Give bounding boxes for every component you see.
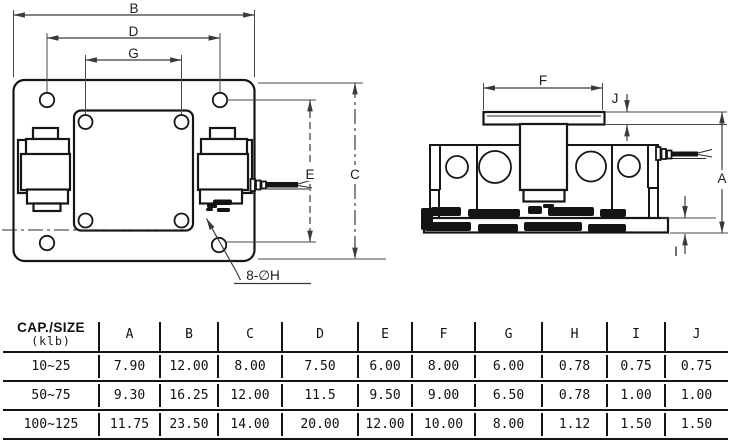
table-row: 10~25 7.90 12.00 8.00 7.50 6.00 8.00 6.0… xyxy=(3,352,728,381)
cell: 1.00 xyxy=(665,381,728,410)
cell: 7.50 xyxy=(282,352,358,381)
cell: 7.90 xyxy=(99,352,160,381)
cell: 8.00 xyxy=(475,410,542,439)
cell: 12.00 xyxy=(218,381,282,410)
dimension-b: B xyxy=(14,1,255,77)
cell: 8.00 xyxy=(412,352,475,381)
cell: 10.00 xyxy=(412,410,475,439)
cell: 6.00 xyxy=(358,352,412,381)
table-row: 50~75 9.30 16.25 12.00 11.5 9.50 9.00 6.… xyxy=(3,381,728,410)
cell: 9.50 xyxy=(358,381,412,410)
table-header-row: CAP./SIZE (klb) A B C D E F G H I J xyxy=(3,317,728,352)
load-cell-drawing-sheet: B D G xyxy=(0,0,730,442)
col-header-c: C xyxy=(218,317,282,352)
col-header-j: J xyxy=(665,317,728,352)
dim-label-e: E xyxy=(305,167,314,182)
dim-label-i: I xyxy=(674,244,678,259)
side-top-plate xyxy=(484,112,605,125)
col-header-f: F xyxy=(412,317,475,352)
cell: 0.78 xyxy=(542,381,607,410)
dimension-j: J xyxy=(612,91,627,141)
front-top-plate xyxy=(74,111,193,231)
cell: 20.00 xyxy=(282,410,358,439)
cell: 0.75 xyxy=(607,352,665,381)
dim-label-b: B xyxy=(129,1,138,16)
col-header-cap: CAP./SIZE (klb) xyxy=(3,317,99,352)
cap-size-unit: (klb) xyxy=(3,335,99,348)
cell: 1.00 xyxy=(607,381,665,410)
cell: 11.75 xyxy=(99,410,160,439)
cell: 1.12 xyxy=(542,410,607,439)
side-cable xyxy=(656,147,712,160)
side-pedestal xyxy=(520,124,567,190)
row-cap: 100~125 xyxy=(3,410,99,439)
dimension-c: C xyxy=(258,83,386,259)
row-cap: 10~25 xyxy=(3,352,99,381)
dim-label-f: F xyxy=(539,73,547,88)
cell: 1.50 xyxy=(607,410,665,439)
table-row: 100~125 11.75 23.50 14.00 20.00 12.00 10… xyxy=(3,410,728,439)
cell: 6.00 xyxy=(475,352,542,381)
cell: 0.75 xyxy=(665,352,728,381)
cell: 23.50 xyxy=(160,410,218,439)
dim-label-j: J xyxy=(612,91,619,106)
side-view: F J A I xyxy=(421,73,730,259)
col-header-i: I xyxy=(607,317,665,352)
dim-label-c: C xyxy=(350,167,360,182)
hole-note-label: 8-∅H xyxy=(246,268,280,283)
col-header-b: B xyxy=(160,317,218,352)
cell: 6.50 xyxy=(475,381,542,410)
cell: 9.00 xyxy=(412,381,475,410)
col-header-e: E xyxy=(358,317,412,352)
cell: 16.25 xyxy=(160,381,218,410)
dimension-i: I xyxy=(661,196,716,259)
front-load-cell-right xyxy=(198,128,252,204)
front-view: B D G xyxy=(2,1,386,284)
dim-label-d: D xyxy=(129,24,139,39)
col-header-h: H xyxy=(542,317,607,352)
cell: 0.78 xyxy=(542,352,607,381)
row-cap: 50~75 xyxy=(3,381,99,410)
cell: 12.00 xyxy=(358,410,412,439)
cell: 11.5 xyxy=(282,381,358,410)
spec-table-wrapper: CAP./SIZE (klb) A B C D E F G H I J 10~2… xyxy=(3,317,728,440)
technical-drawing: B D G xyxy=(0,0,730,312)
dimension-a: A xyxy=(670,112,730,233)
col-header-d: D xyxy=(282,317,358,352)
cap-size-title: CAP./SIZE xyxy=(3,320,99,335)
col-header-g: G xyxy=(475,317,542,352)
cell: 14.00 xyxy=(218,410,282,439)
cell: 12.00 xyxy=(160,352,218,381)
cell: 1.50 xyxy=(665,410,728,439)
cell: 9.30 xyxy=(99,381,160,410)
cell: 8.00 xyxy=(218,352,282,381)
spec-table: CAP./SIZE (klb) A B C D E F G H I J 10~2… xyxy=(3,317,728,440)
dim-label-a: A xyxy=(717,171,726,186)
dimension-f: F xyxy=(484,73,603,110)
col-header-a: A xyxy=(99,317,160,352)
side-pedestal-foot xyxy=(524,190,565,202)
dim-label-g: G xyxy=(128,46,139,61)
